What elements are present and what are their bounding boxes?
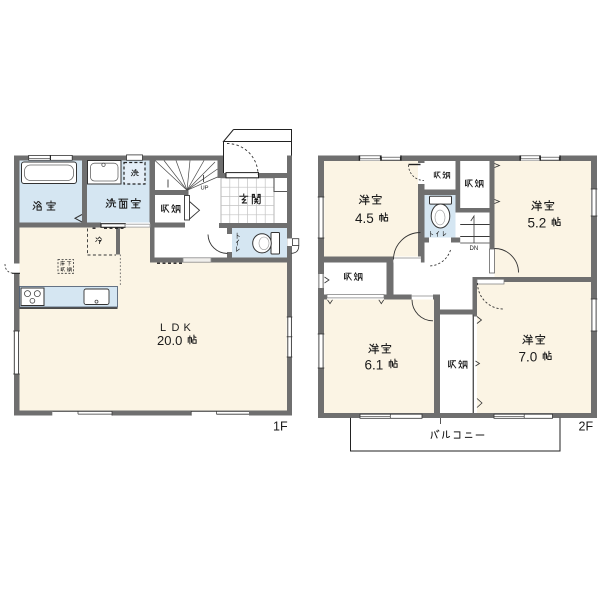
svg-text:UP: UP [201, 185, 209, 191]
svg-text:7.0: 7.0 [519, 350, 538, 365]
svg-text:5.2: 5.2 [528, 216, 547, 231]
svg-text:L: L [160, 322, 166, 334]
svg-text:D: D [172, 322, 180, 334]
svg-text:K: K [184, 322, 192, 334]
svg-text:DN: DN [470, 246, 479, 252]
svg-text:2F: 2F [579, 420, 594, 434]
svg-text:4.5: 4.5 [355, 211, 374, 226]
svg-text:1F: 1F [273, 419, 288, 433]
svg-text:20.0: 20.0 [157, 333, 182, 348]
svg-text:6.1: 6.1 [365, 357, 384, 372]
